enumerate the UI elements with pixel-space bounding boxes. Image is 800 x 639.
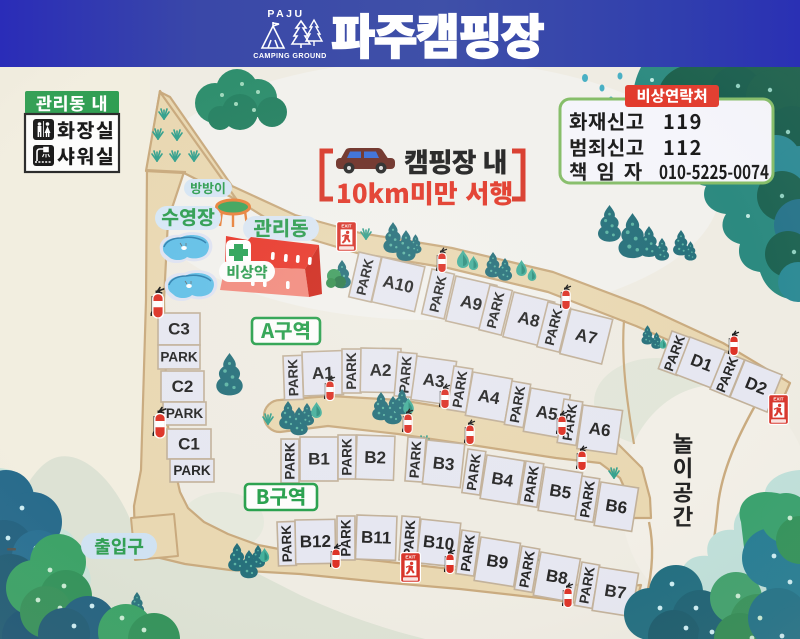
svg-text:CAMPING GROUND: CAMPING GROUND: [253, 51, 326, 60]
svg-text:PAJU: PAJU: [267, 8, 304, 20]
